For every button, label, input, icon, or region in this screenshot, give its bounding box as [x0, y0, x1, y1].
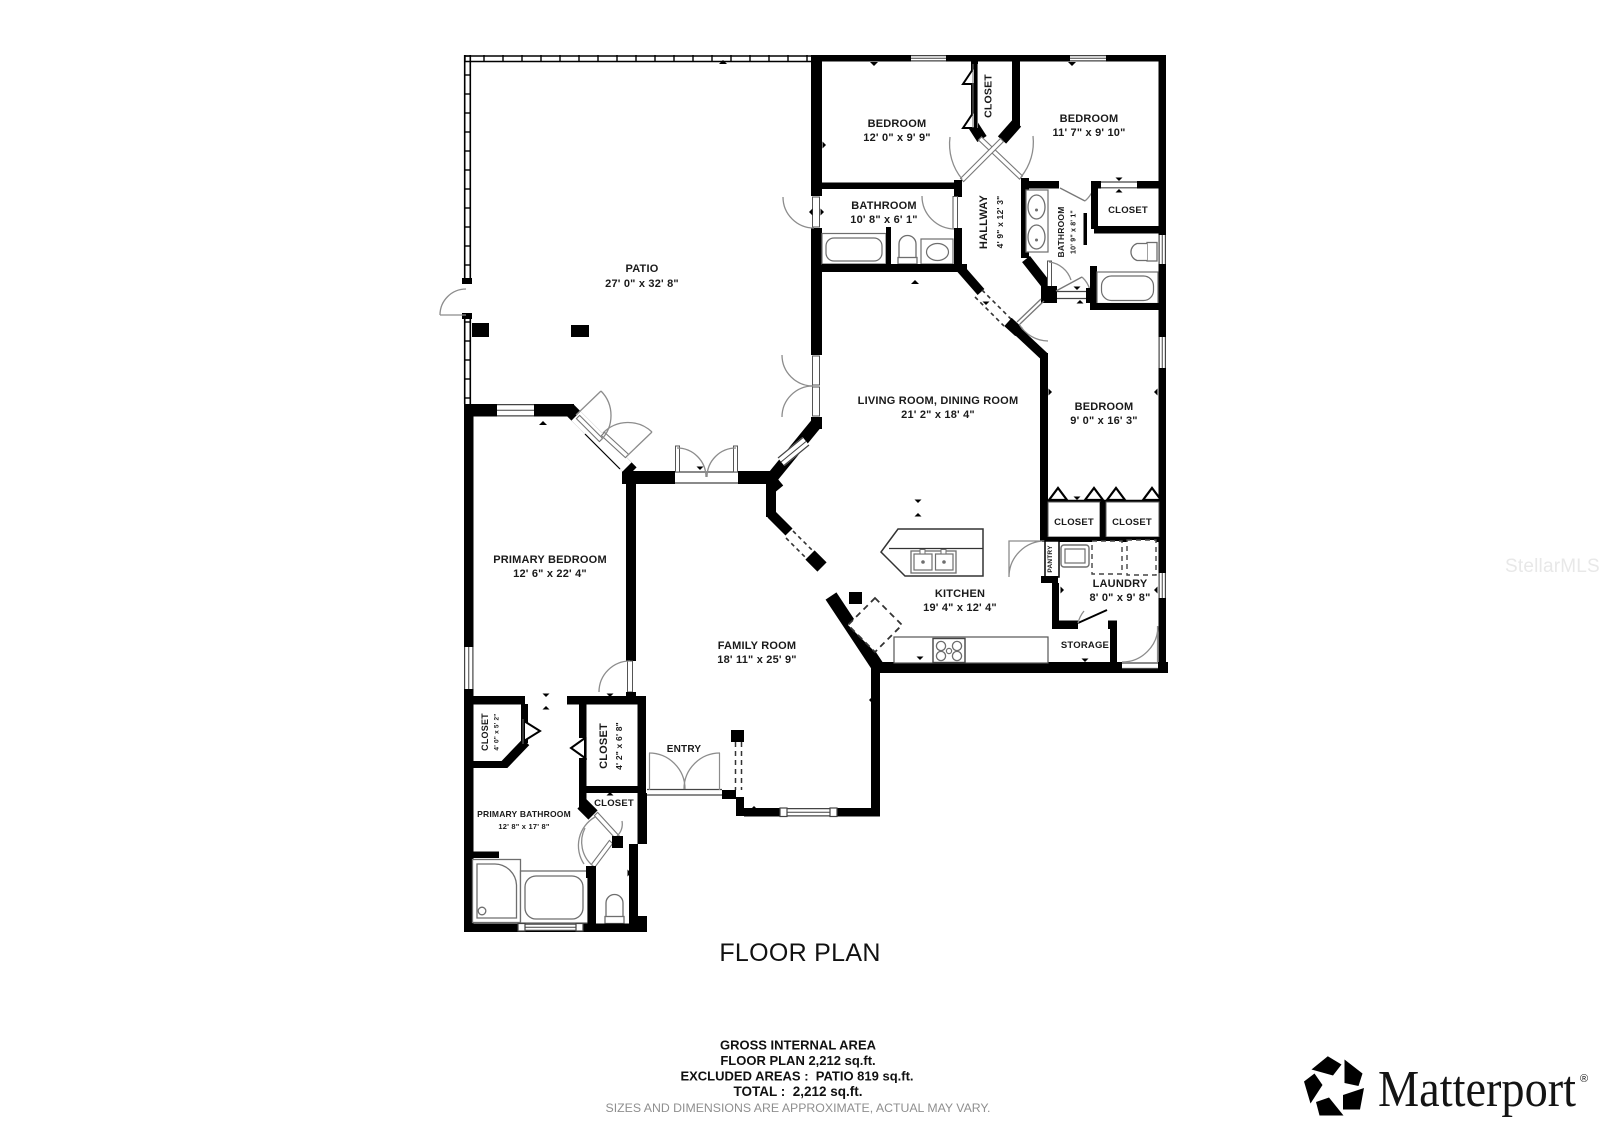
svg-text:GROSS INTERNAL AREA: GROSS INTERNAL AREA	[720, 1038, 877, 1053]
svg-text:STORAGE: STORAGE	[1061, 640, 1109, 651]
svg-text:ENTRY: ENTRY	[667, 744, 702, 755]
svg-text:10' 9" x 8' 1": 10' 9" x 8' 1"	[1071, 210, 1078, 254]
svg-text:SIZES AND DIMENSIONS ARE APPRO: SIZES AND DIMENSIONS ARE APPROXIMATE, AC…	[606, 1101, 991, 1115]
svg-text:11' 7" x 9' 10": 11' 7" x 9' 10"	[1052, 127, 1125, 139]
svg-text:4' 9" x 12' 3": 4' 9" x 12' 3"	[995, 196, 1005, 249]
svg-text:EXCLUDED AREAS : PATIO 819 sq: EXCLUDED AREAS : PATIO 819 sq.ft.	[680, 1069, 913, 1084]
svg-text:BEDROOM: BEDROOM	[1075, 401, 1134, 413]
svg-text:HALLWAY: HALLWAY	[978, 194, 990, 249]
svg-text:CLOSET: CLOSET	[480, 713, 490, 751]
svg-text:BEDROOM: BEDROOM	[868, 118, 927, 130]
svg-text:PANTRY: PANTRY	[1047, 545, 1054, 573]
svg-text:KITCHEN: KITCHEN	[935, 588, 985, 600]
svg-text:LIVING ROOM, DINING ROOM: LIVING ROOM, DINING ROOM	[858, 395, 1019, 407]
svg-text:CLOSET: CLOSET	[1108, 205, 1148, 216]
svg-text:LAUNDRY: LAUNDRY	[1093, 578, 1148, 590]
svg-text:9' 0" x 16' 3": 9' 0" x 16' 3"	[1070, 415, 1137, 427]
svg-text:FLOOR PLAN: FLOOR PLAN	[719, 939, 880, 967]
svg-text:FAMILY ROOM: FAMILY ROOM	[718, 640, 797, 652]
svg-text:Matterport: Matterport	[1378, 1061, 1576, 1118]
svg-text:StellarMLS: StellarMLS	[1505, 556, 1600, 577]
svg-text:PRIMARY BATHROOM: PRIMARY BATHROOM	[477, 809, 571, 819]
svg-text:BEDROOM: BEDROOM	[1060, 113, 1119, 125]
svg-text:PATIO: PATIO	[626, 263, 659, 275]
svg-text:CLOSET: CLOSET	[1054, 517, 1094, 528]
svg-text:12' 8" x 17' 8": 12' 8" x 17' 8"	[498, 822, 549, 831]
svg-text:FLOOR PLAN 2,212 sq.ft.: FLOOR PLAN 2,212 sq.ft.	[720, 1053, 875, 1068]
svg-text:CLOSET: CLOSET	[594, 798, 634, 809]
svg-text:27' 0" x 32' 8": 27' 0" x 32' 8"	[605, 278, 679, 290]
svg-text:10' 8" x 6' 1": 10' 8" x 6' 1"	[850, 214, 917, 226]
svg-text:18' 11" x 25' 9": 18' 11" x 25' 9"	[717, 654, 796, 666]
svg-text:CLOSET: CLOSET	[598, 723, 610, 769]
svg-text:12' 6" x 22' 4": 12' 6" x 22' 4"	[513, 568, 587, 580]
svg-text:4' 0" x 5' 2": 4' 0" x 5' 2"	[494, 713, 501, 750]
svg-text:®: ®	[1580, 1073, 1588, 1085]
svg-text:TOTAL : 2,212 sq.ft.: TOTAL : 2,212 sq.ft.	[733, 1084, 862, 1099]
svg-text:BATHROOM: BATHROOM	[851, 200, 917, 212]
svg-text:4' 2" x 6' 8": 4' 2" x 6' 8"	[614, 722, 624, 770]
svg-text:CLOSET: CLOSET	[983, 74, 995, 118]
svg-text:8' 0" x 9' 8": 8' 0" x 9' 8"	[1089, 592, 1150, 604]
svg-text:PRIMARY BEDROOM: PRIMARY BEDROOM	[493, 554, 607, 566]
svg-text:BATHROOM: BATHROOM	[1056, 206, 1066, 257]
svg-text:12' 0" x 9' 9": 12' 0" x 9' 9"	[863, 132, 930, 144]
svg-text:CLOSET: CLOSET	[1112, 517, 1152, 528]
svg-text:19' 4" x 12' 4": 19' 4" x 12' 4"	[923, 602, 997, 614]
svg-text:21' 2" x 18' 4": 21' 2" x 18' 4"	[901, 409, 975, 421]
